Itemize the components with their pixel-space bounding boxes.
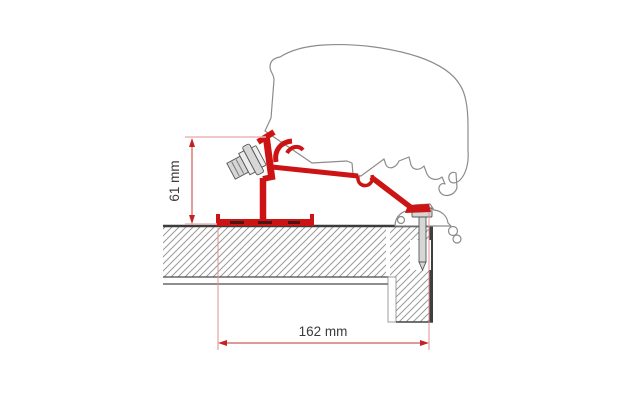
height-dimension-label: 61 mm [167, 160, 182, 201]
caravan-body-profile [265, 45, 468, 196]
diagram-canvas: 61 mm 162 mm [0, 0, 640, 400]
roof-panel [163, 226, 433, 284]
width-dimension-label: 162 mm [299, 324, 348, 339]
